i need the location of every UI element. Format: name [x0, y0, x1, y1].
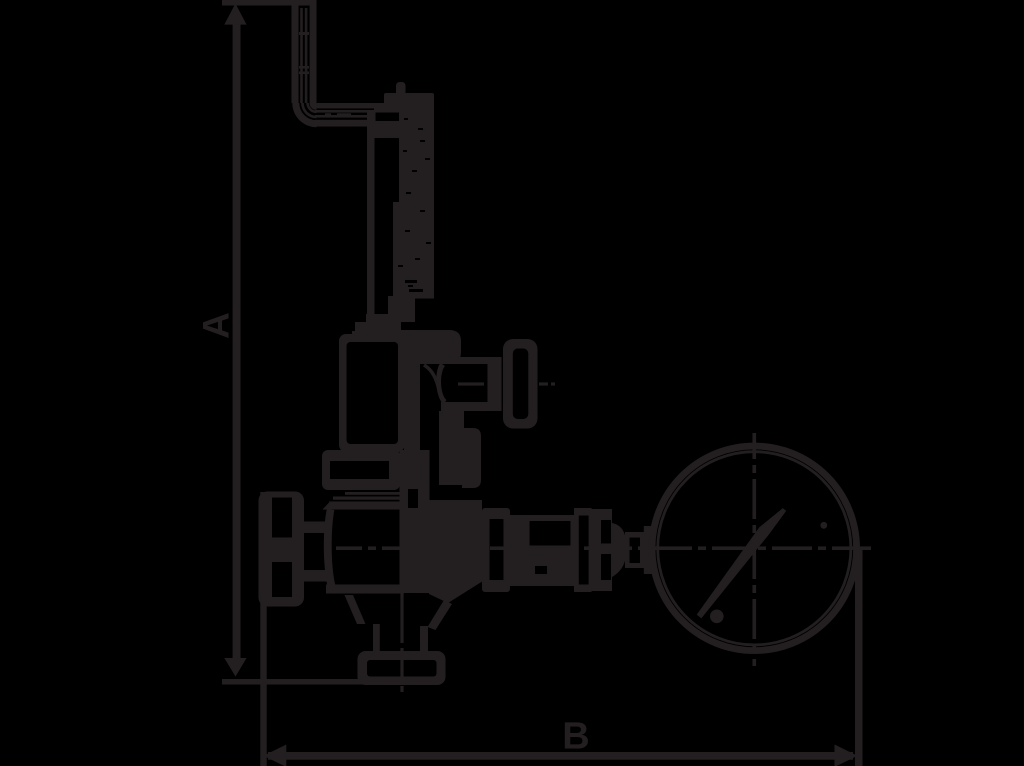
svg-text:A: A [196, 312, 237, 339]
svg-text:B: B [562, 716, 589, 758]
